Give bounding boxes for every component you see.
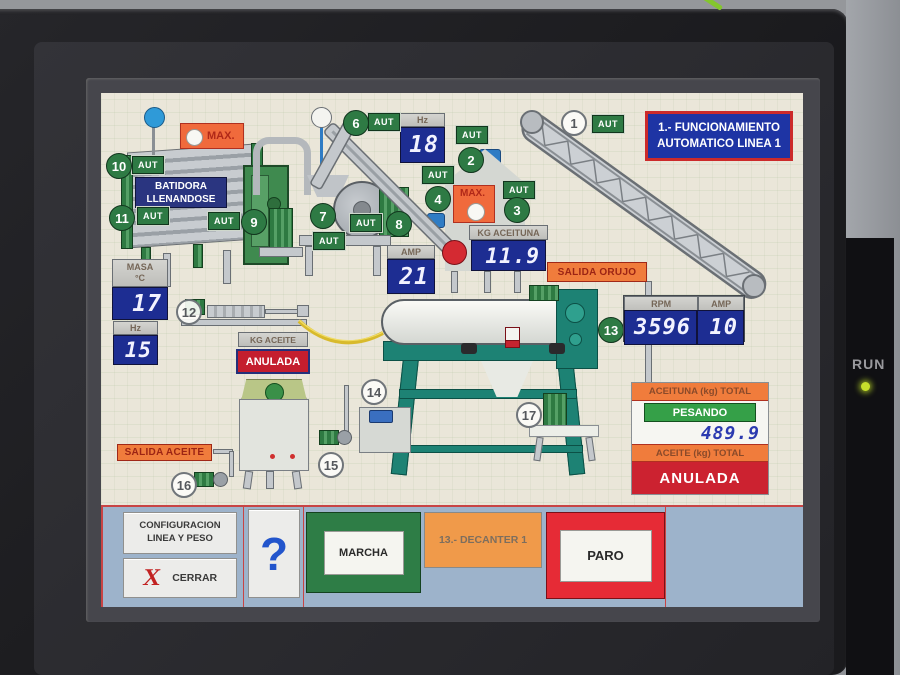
conveyor-roller-top [521,111,543,133]
badge-1: 1 [561,110,587,136]
marcha-button[interactable]: MARCHA [306,512,421,593]
aceituna-total-header: ACEITUNA (kg) TOTAL [632,383,768,401]
rpm-value: 3596 [634,315,691,340]
run-led-indicator [861,382,870,391]
pesando-status: PESANDO [644,403,756,422]
aut-button-2[interactable]: AUT [456,126,488,144]
badge-15: 15 [318,452,344,478]
aceite-total-header: ACEITE (kg) TOTAL [632,444,768,462]
badge-12: 12 [176,299,202,325]
badge-14: 14 [361,379,387,405]
decanter-rpm-amp-panel: RPM AMP 3596 10 [623,295,745,342]
screen-title: 1.- FUNCIONAMIENTO AUTOMATICO LINEA 1 [645,111,793,161]
config-button[interactable]: CONFIGURACION LINEA Y PESO [123,512,237,554]
kg-aceituna-display: 11.9 [471,240,546,271]
hz6-value: 18 [409,132,439,158]
masa-header-line1: MASA [127,262,154,273]
badge-3: 3 [504,197,530,223]
aut-button-8[interactable]: AUT [350,214,382,232]
salida-aceite-label: SALIDA ACEITE [117,444,212,461]
screen-title-line1: 1.- FUNCIONAMIENTO [658,120,780,136]
max-indicator-batidora: MAX. [180,123,244,149]
hz12-header: Hz [113,321,158,335]
run-label: RUN [852,356,885,372]
marcha-button-label: MARCHA [324,531,404,575]
badge-4: 4 [425,186,451,212]
amp8-display: 21 [387,259,435,294]
badge-7: 7 [310,203,336,229]
masa-value: 17 [132,291,162,317]
max-indicator-label: MAX. [207,130,235,142]
hz12-value: 15 [125,338,152,362]
rpm-display: 3596 [624,310,697,345]
kg-aceite-status: ANULADA [236,349,310,374]
kg-aceite-header: KG ACEITE [238,332,308,347]
question-mark-icon: ? [260,527,288,581]
kg-aceituna-value: 11.9 [485,244,540,268]
photo-of-hmi-panel: RUN [0,0,900,675]
cerrar-button-label: CERRAR [172,572,217,584]
paro-button-label: PARO [560,530,652,582]
oil-hose [299,321,383,342]
salida-orujo-label: SALIDA ORUJO [547,262,647,282]
max-indicator-lamp [186,129,203,146]
badge-9: 9 [241,209,267,235]
control-bar: CONFIGURACION LINEA Y PESO X CERRAR ? MA… [101,505,803,607]
config-button-line2: LINEA Y PESO [147,533,213,546]
separator [243,507,244,607]
masa-display: 17 [112,287,168,320]
max-indicator-lamp [467,203,485,221]
kg-aceituna-header: KG ACEITUNA [469,225,548,240]
screen-title-line2: AUTOMATICO LINEA 1 [657,136,781,152]
panel-side-module [846,238,894,675]
batidora-status-label: BATIDORA LLENANDOSE [135,177,227,208]
conveyor-roller-bottom [743,275,765,297]
aut-button-9[interactable]: AUT [208,212,240,230]
totals-panel: ACEITUNA (kg) TOTAL PESANDO 489.9 ACEITE… [631,382,769,495]
aut-button-4[interactable]: AUT [422,166,454,184]
help-button[interactable]: ? [248,509,300,598]
aut-button-1[interactable]: AUT [592,115,624,133]
config-button-line1: CONFIGURACION [139,520,220,533]
aut-button-7[interactable]: AUT [313,232,345,250]
badge-10: 10 [106,153,132,179]
hz6-header: Hz [400,113,445,127]
decanter-selector-label[interactable]: 13.- DECANTER 1 [424,512,542,568]
cerrar-button[interactable]: X CERRAR [123,558,237,598]
amp8-value: 21 [399,264,429,290]
aceite-total-status: ANULADA [632,462,768,494]
masa-header: MASA °C [112,259,168,287]
separator [303,507,304,607]
aut-button-11[interactable]: AUT [137,207,169,225]
badge-16: 16 [171,472,197,498]
aceituna-total-display: 489.9 [632,422,768,444]
badge-8: 8 [386,211,412,237]
hmi-screen: 1.- FUNCIONAMIENTO AUTOMATICO LINEA 1 MA… [101,93,803,607]
badge-6: 6 [343,110,369,136]
batidora-status-line2: LLENANDOSE [147,193,216,206]
max-indicator-label: MAX. [460,188,485,199]
badge-11: 11 [109,205,135,231]
separator [665,507,666,607]
aut-button-10[interactable]: AUT [132,156,164,174]
amp13-value: 10 [710,315,739,340]
amp13-display: 10 [697,310,744,345]
aceituna-total-value: 489.9 [701,423,760,444]
hz12-display: 15 [113,335,158,365]
paro-button[interactable]: PARO [546,512,665,599]
masa-header-line2: °C [135,273,145,284]
amp8-header: AMP [387,245,435,259]
badge-17: 17 [516,402,542,428]
aut-button-6[interactable]: AUT [368,113,400,131]
badge-13: 13 [598,317,624,343]
close-x-icon: X [141,565,162,592]
batidora-status-line1: BATIDORA [155,180,207,193]
badge-2: 2 [458,147,484,173]
red-level-ball [442,240,467,265]
hz6-display: 18 [400,127,445,163]
max-indicator-hopper: MAX. [453,185,495,223]
